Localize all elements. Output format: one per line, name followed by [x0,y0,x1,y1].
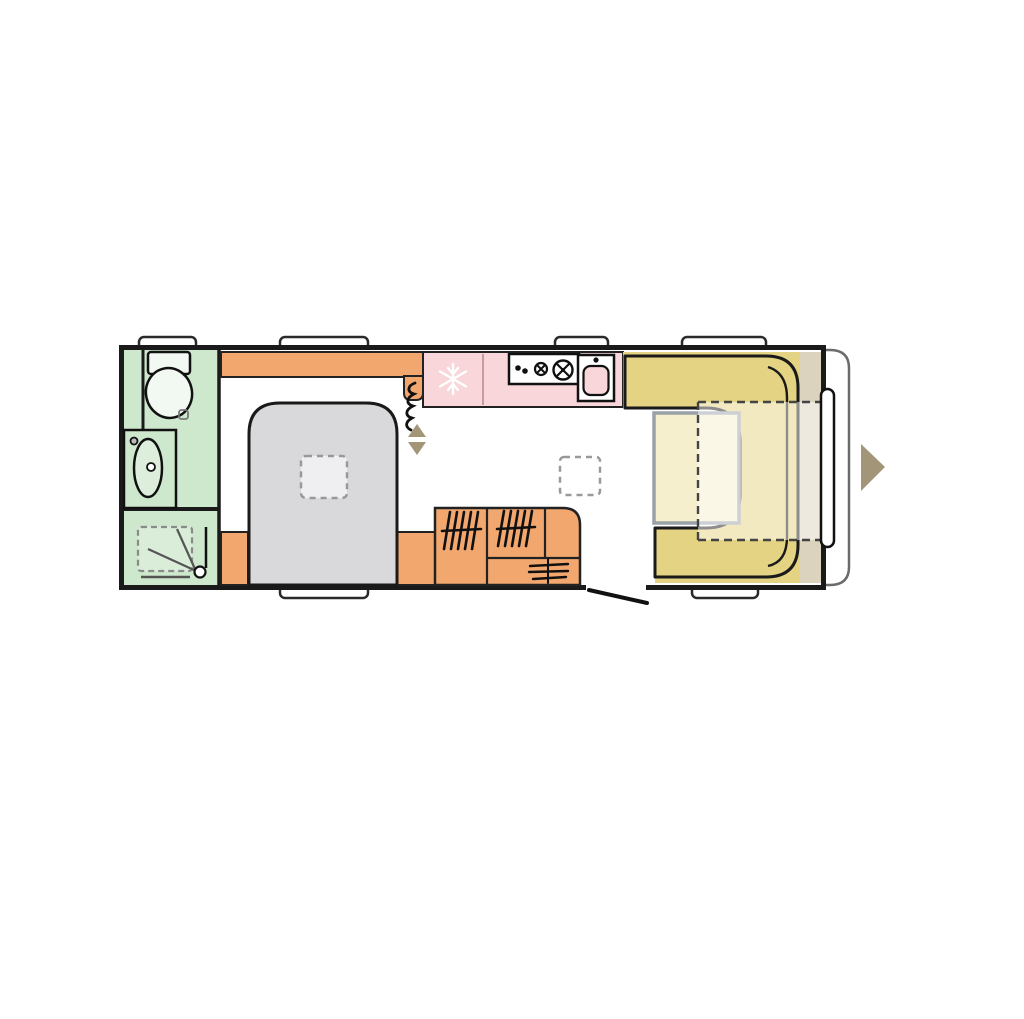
overhead-wardrobe [221,352,423,377]
bed-skylight [301,456,347,498]
kitchen-counter [423,352,623,407]
shower-head-icon [195,567,206,578]
washbasin-icon [124,430,176,508]
hob-knob [515,365,521,371]
bathroom-area [124,350,219,585]
page: hallen Caravan- [0,0,1024,1019]
kitchen-sink-icon [578,355,614,401]
wardrobe-end-cabinet [404,376,423,400]
entrance-arrow-icon [861,444,885,491]
sink-tap [593,357,598,362]
bed-conversion-overlay [698,402,821,540]
hob-knob [522,368,528,374]
front-wall-window [821,389,834,547]
dinette-area [623,352,821,585]
overlay-fill [698,402,821,540]
caravanhallen-logo: hallen Caravan- [20,838,330,1003]
island-bed [249,403,397,585]
sink-basin [584,366,609,395]
dinette-floor [623,528,655,585]
cabinet-bottom-right [397,532,436,585]
sofa-bench [435,508,580,585]
washbasin-drain [147,463,155,471]
entry-door [586,582,647,603]
washbasin-tap [131,438,138,445]
cabinet-bottom-left [221,532,248,585]
hob-icon [509,354,579,384]
roof-skylight [560,457,600,495]
